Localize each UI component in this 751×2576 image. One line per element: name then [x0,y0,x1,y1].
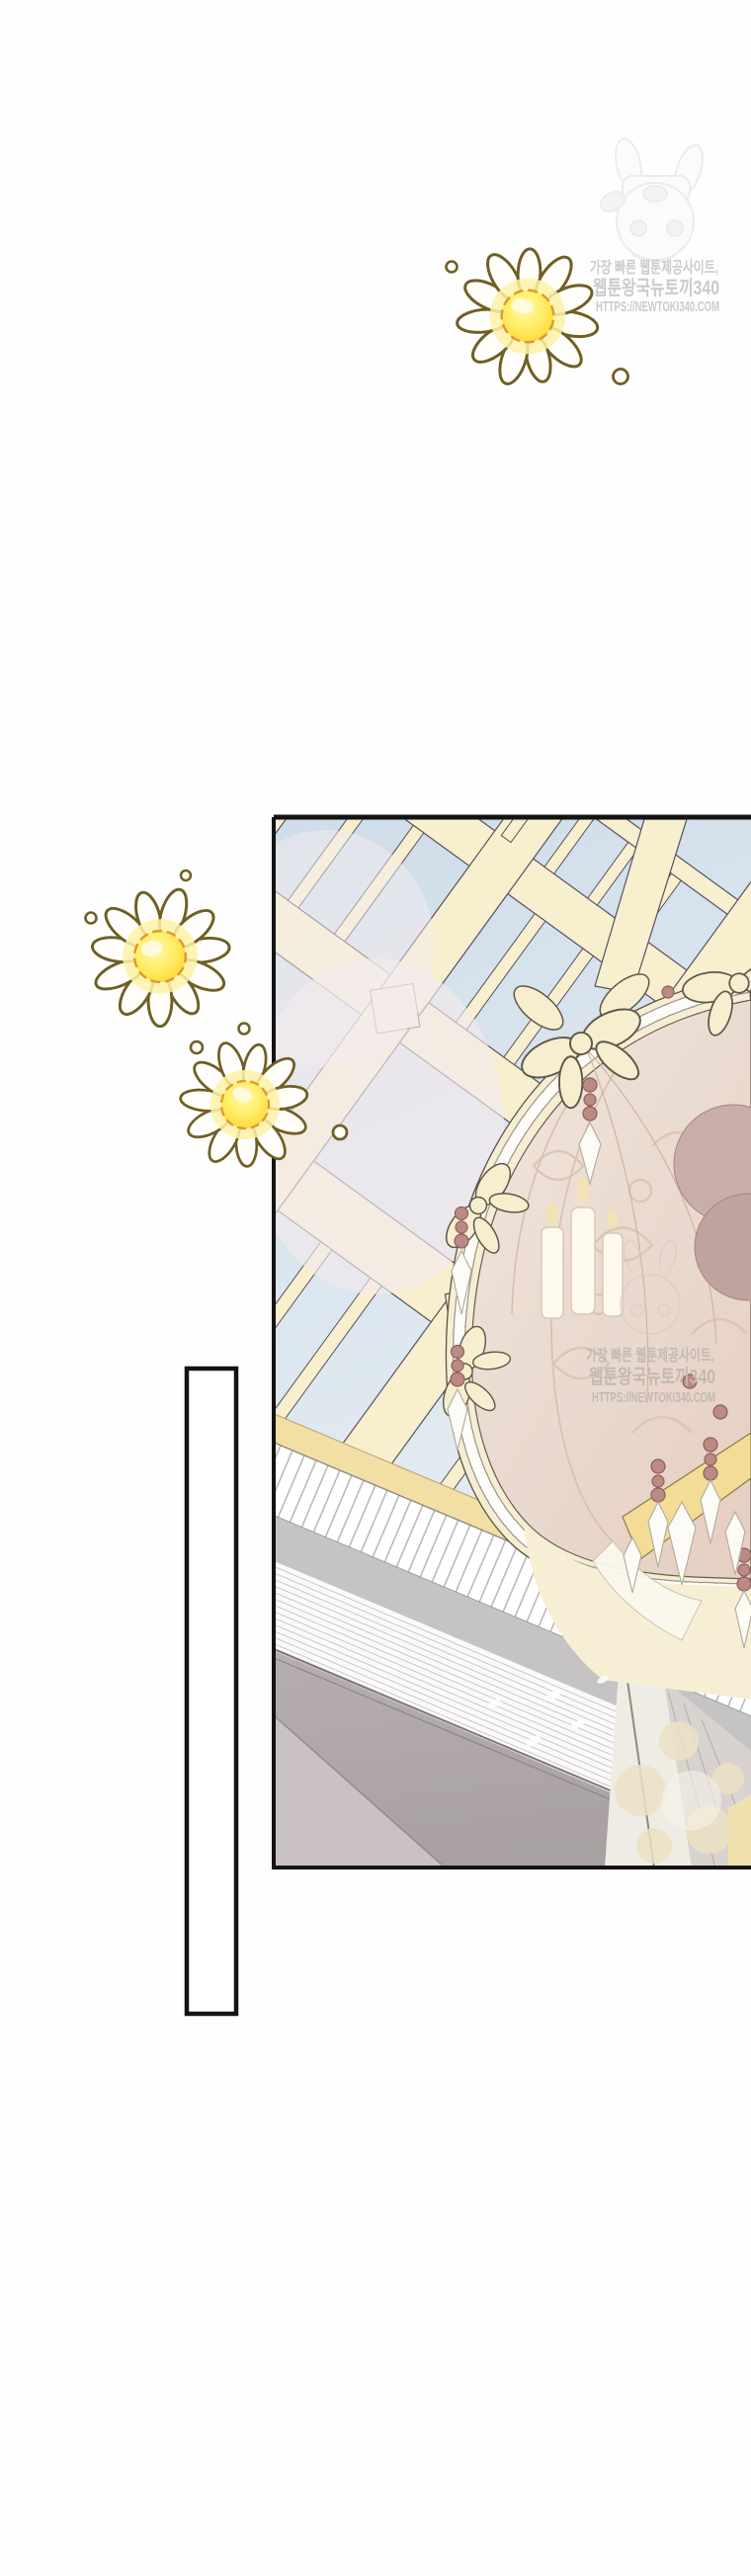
svg-text:가장 빠른 웹툰제공사이트,: 가장 빠른 웹툰제공사이트, [586,1347,714,1365]
svg-text:HTTPS://NEWTOKI340.COM: HTTPS://NEWTOKI340.COM [596,299,719,315]
svg-text:웹툰왕국뉴토끼340: 웹툰왕국뉴토끼340 [593,277,719,299]
svg-text:웹툰왕국뉴토끼340: 웹툰왕국뉴토끼340 [589,1366,715,1388]
svg-text:HTTPS://NEWTOKI340.COM: HTTPS://NEWTOKI340.COM [592,1390,715,1406]
svg-text:가장 빠른 웹툰제공사이트,: 가장 빠른 웹툰제공사이트, [590,259,718,277]
